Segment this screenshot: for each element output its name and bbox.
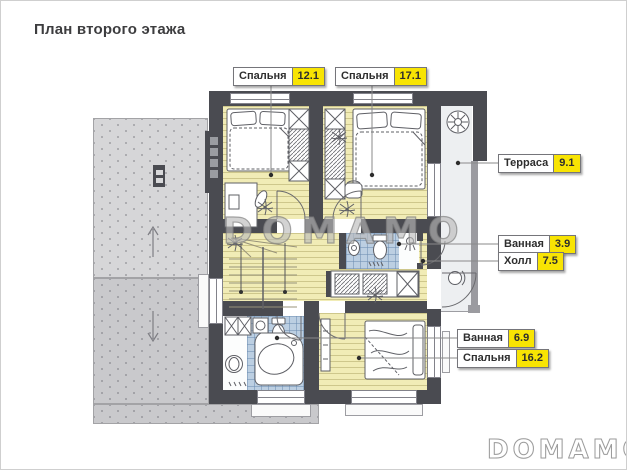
wardrobe-bedroom-121 — [289, 109, 309, 181]
room-area: 12.1 — [292, 68, 324, 85]
room-label-bedroom-171: Спальня17.1 — [335, 67, 427, 86]
brand-logo: DOMAMO — [487, 435, 627, 465]
room-name: Ванная — [458, 330, 508, 347]
roof-arrow-up — [148, 227, 158, 257]
room-name: Терраса — [499, 155, 553, 172]
room-area: 3.9 — [549, 236, 575, 253]
room-label-terrace: Терраса9.1 — [498, 154, 581, 173]
bed-bedroom-121 — [227, 109, 291, 171]
room-area: 16.2 — [516, 350, 548, 367]
terrace-plant — [447, 111, 469, 133]
room-name: Спальня — [336, 68, 394, 85]
wardrobe-bedroom-171 — [325, 109, 345, 199]
armchair-bedroom-171 — [345, 181, 362, 198]
room-name: Ванная — [499, 236, 549, 253]
washing-machine-bathroom-69 — [253, 318, 268, 333]
room-area: 6.9 — [508, 330, 534, 347]
room-area: 7.5 — [537, 253, 563, 270]
bed-bedroom-171 — [353, 109, 425, 189]
room-name: Спальня — [234, 68, 292, 85]
watermark: DOMAMO — [223, 211, 468, 252]
floor-plan-page: План второго этажа — [0, 0, 627, 470]
closet-hall — [331, 271, 419, 297]
bed-bedroom-162 — [365, 321, 425, 379]
room-label-bathroom-69: Ванная6.9 — [457, 329, 535, 348]
room-area: 9.1 — [553, 155, 579, 172]
room-label-hall: Холл7.5 — [498, 252, 564, 271]
room-label-bedroom-121: Спальня12.1 — [233, 67, 325, 86]
shelves-bathroom-69 — [225, 317, 251, 335]
page-title: План второго этажа — [34, 21, 185, 38]
sink-bathroom-69 — [226, 356, 243, 373]
roof-arrow-down — [148, 311, 158, 341]
room-label-bedroom-162: Спальня16.2 — [457, 349, 549, 368]
room-name: Спальня — [458, 350, 516, 367]
room-area: 17.1 — [394, 68, 426, 85]
room-name: Холл — [499, 253, 537, 270]
